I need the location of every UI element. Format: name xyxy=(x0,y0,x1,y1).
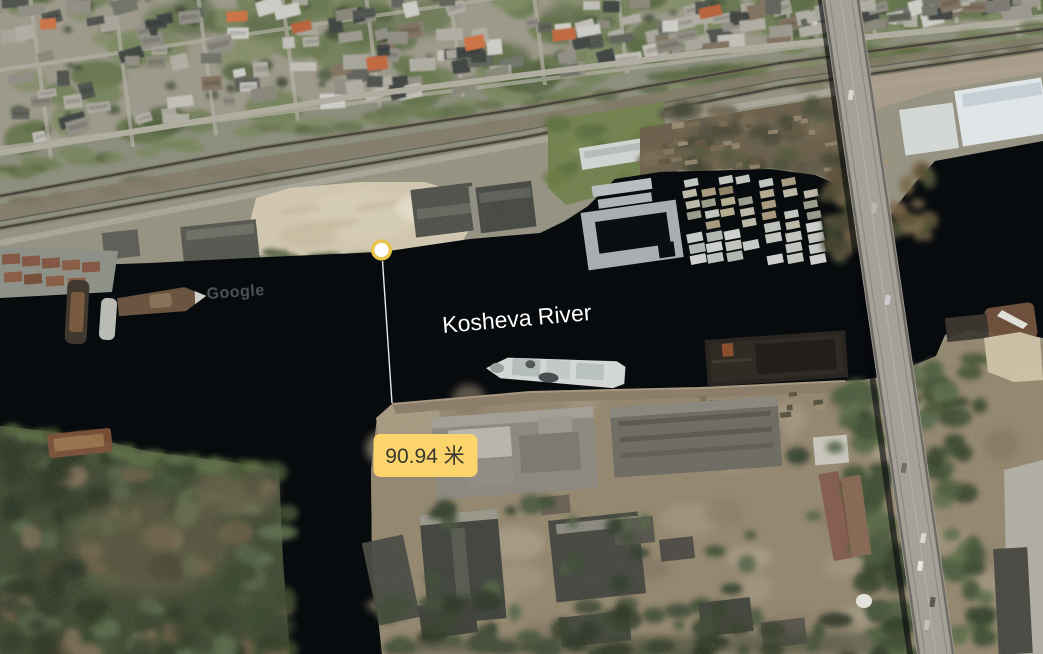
svg-text:90.94 米: 90.94 米 xyxy=(385,445,464,468)
